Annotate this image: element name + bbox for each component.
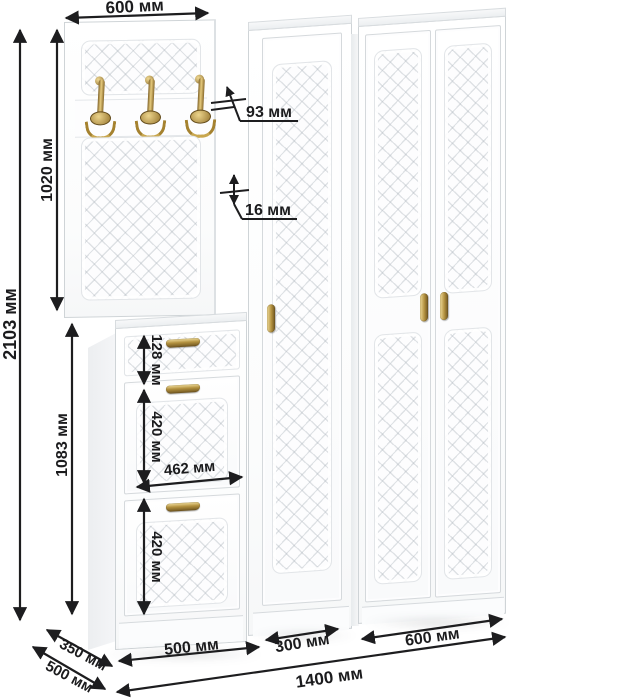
dim-label-shoe-cabinet-height: 1083 мм xyxy=(54,413,71,477)
dim-label-panel-width-top: 600 мм xyxy=(105,0,164,18)
callout-hook-offset: 93 мм xyxy=(211,87,298,121)
dim-label-panel-height: 1020 мм xyxy=(39,138,56,202)
dim-label-hook-offset: 93 мм xyxy=(246,104,292,121)
furniture-dimension-diagram: 600 мм 2103 мм 1020 мм 1083 мм 128 мм 42… xyxy=(0,0,632,700)
dim-arrow-inner-width xyxy=(137,477,242,487)
dimension-overlay: 600 мм 2103 мм 1020 мм 1083 мм 128 мм 42… xyxy=(0,0,632,700)
dim-label-middle-width: 300 мм xyxy=(274,631,331,656)
dim-label-shoe-cabinet-width: 500 мм xyxy=(163,636,219,659)
dim-label-inner-width: 462 мм xyxy=(163,458,216,479)
dim-label-total-width: 1400 мм xyxy=(294,663,364,691)
callout-panel-thickness: 16 мм xyxy=(220,175,297,219)
dim-label-panel-thickness: 16 мм xyxy=(245,202,291,219)
dim-label-total-height: 2103 мм xyxy=(0,288,20,360)
dim-label-drawer-height: 128 мм xyxy=(148,334,165,385)
dim-label-compartment-top: 420 мм xyxy=(148,411,165,462)
dim-label-compartment-bottom: 420 мм xyxy=(148,531,165,582)
dim-label-right-width: 600 мм xyxy=(404,625,461,649)
